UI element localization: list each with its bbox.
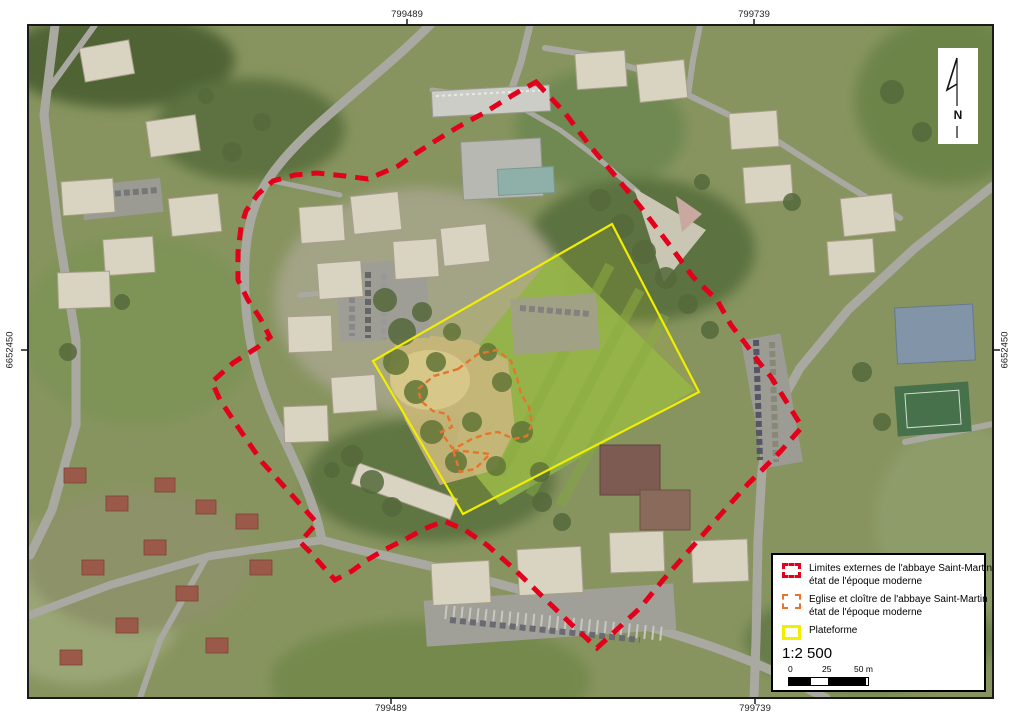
- legend: Limites externes de l'abbaye Saint-Marti…: [771, 553, 986, 692]
- orange-dashed-swatch-icon: [782, 594, 801, 609]
- coord-label-left: 6652450: [5, 332, 16, 369]
- legend-label-line2: état de l'époque moderne: [809, 606, 988, 619]
- scale-label-25: 25: [822, 664, 831, 674]
- coord-label-top-right: 799739: [738, 9, 770, 20]
- coord-label-right: 6652450: [1000, 332, 1011, 369]
- coord-label-top-left: 799489: [391, 9, 423, 20]
- coord-label-bottom-right: 799739: [739, 703, 771, 714]
- legend-label-line2: état de l'époque moderne: [809, 575, 992, 588]
- coord-label-bottom-left: 799489: [375, 703, 407, 714]
- north-label: N: [938, 108, 978, 122]
- north-arrow: N: [938, 48, 978, 144]
- legend-item-platform: Plateforme: [782, 624, 984, 640]
- scale-bar: 0 25 50 m: [782, 664, 892, 694]
- scale-bar-segments: [788, 677, 869, 686]
- red-dashed-swatch-icon: [782, 563, 801, 578]
- map-sheet: 799489 799739 799489 799739 6652450 6652…: [0, 0, 1023, 726]
- scale-label-50: 50 m: [854, 664, 873, 674]
- yellow-swatch-icon: [782, 625, 801, 640]
- scale-ratio-text: 1:2 500: [782, 645, 984, 662]
- legend-label: Eglise et cloître de l'abbaye Saint-Mart…: [809, 593, 988, 606]
- legend-item-church-cloister: Eglise et cloître de l'abbaye Saint-Mart…: [782, 593, 984, 619]
- legend-label: Limites externes de l'abbaye Saint-Marti…: [809, 562, 992, 575]
- north-arrow-icon: [938, 48, 978, 144]
- legend-item-outer-limits: Limites externes de l'abbaye Saint-Marti…: [782, 562, 984, 588]
- scale-label-0: 0: [788, 664, 793, 674]
- legend-label: Plateforme: [809, 624, 857, 637]
